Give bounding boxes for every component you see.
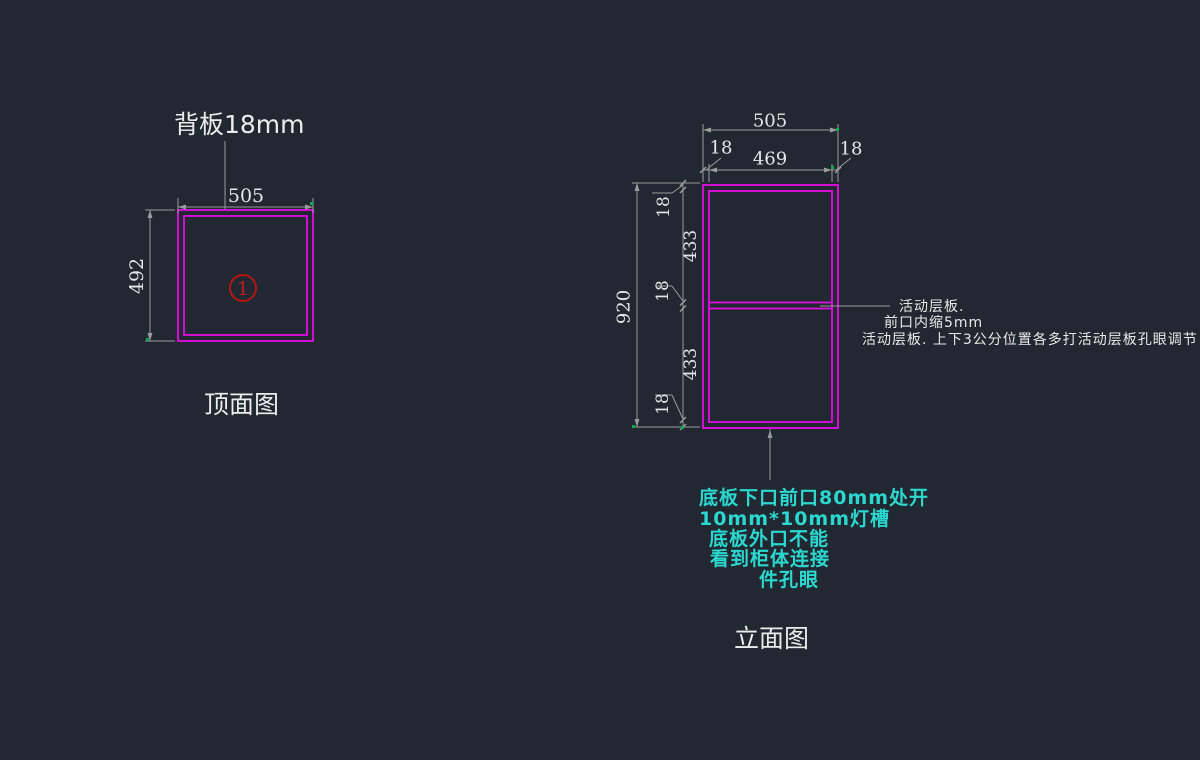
- bottom-note-line-5: 件孔眼: [759, 565, 819, 592]
- top-view-width-dimension: 505: [228, 185, 264, 207]
- elevation-dimension-ticks: [680, 167, 841, 430]
- elevation-inner-width-dimension: 469: [753, 149, 787, 170]
- back-panel-callout: 背板18mm: [174, 105, 305, 141]
- top-view-title: 顶面图: [204, 385, 279, 421]
- elevation-segment-dimension-bottom-18: 18: [653, 393, 673, 415]
- cad-drawing-canvas[interactable]: 背板18mm 505 492 1 顶面图 505 18 469 18 920 1…: [0, 0, 1200, 760]
- snap-point-markers: [146, 128, 839, 429]
- top-view-dimension-arrows: [148, 205, 314, 342]
- top-view-dimension-lines: [145, 141, 313, 341]
- elevation-segment-dimension-top-18: 18: [654, 196, 674, 218]
- elevation-title: 立面图: [734, 619, 809, 655]
- elevation-right-panel-dimension: 18: [840, 139, 863, 160]
- balloon-number: 1: [237, 278, 249, 300]
- elevation-overall-height-dimension: 920: [614, 290, 635, 324]
- elevation-left-panel-dimension: 18: [710, 138, 733, 159]
- shelf-note-line-3: 活动层板. 上下3公分位置各多打活动层板孔眼调节: [862, 329, 1198, 349]
- elevation-segment-dimension-lower-433: 433: [681, 348, 701, 380]
- elevation-segment-dimension-upper-433: 433: [681, 230, 701, 262]
- elevation-segment-dimension-middle-18: 18: [653, 280, 673, 302]
- elevation-overall-width-dimension: 505: [753, 111, 787, 132]
- top-view-height-dimension: 492: [126, 258, 148, 294]
- elevation-panel-outline: [703, 185, 838, 428]
